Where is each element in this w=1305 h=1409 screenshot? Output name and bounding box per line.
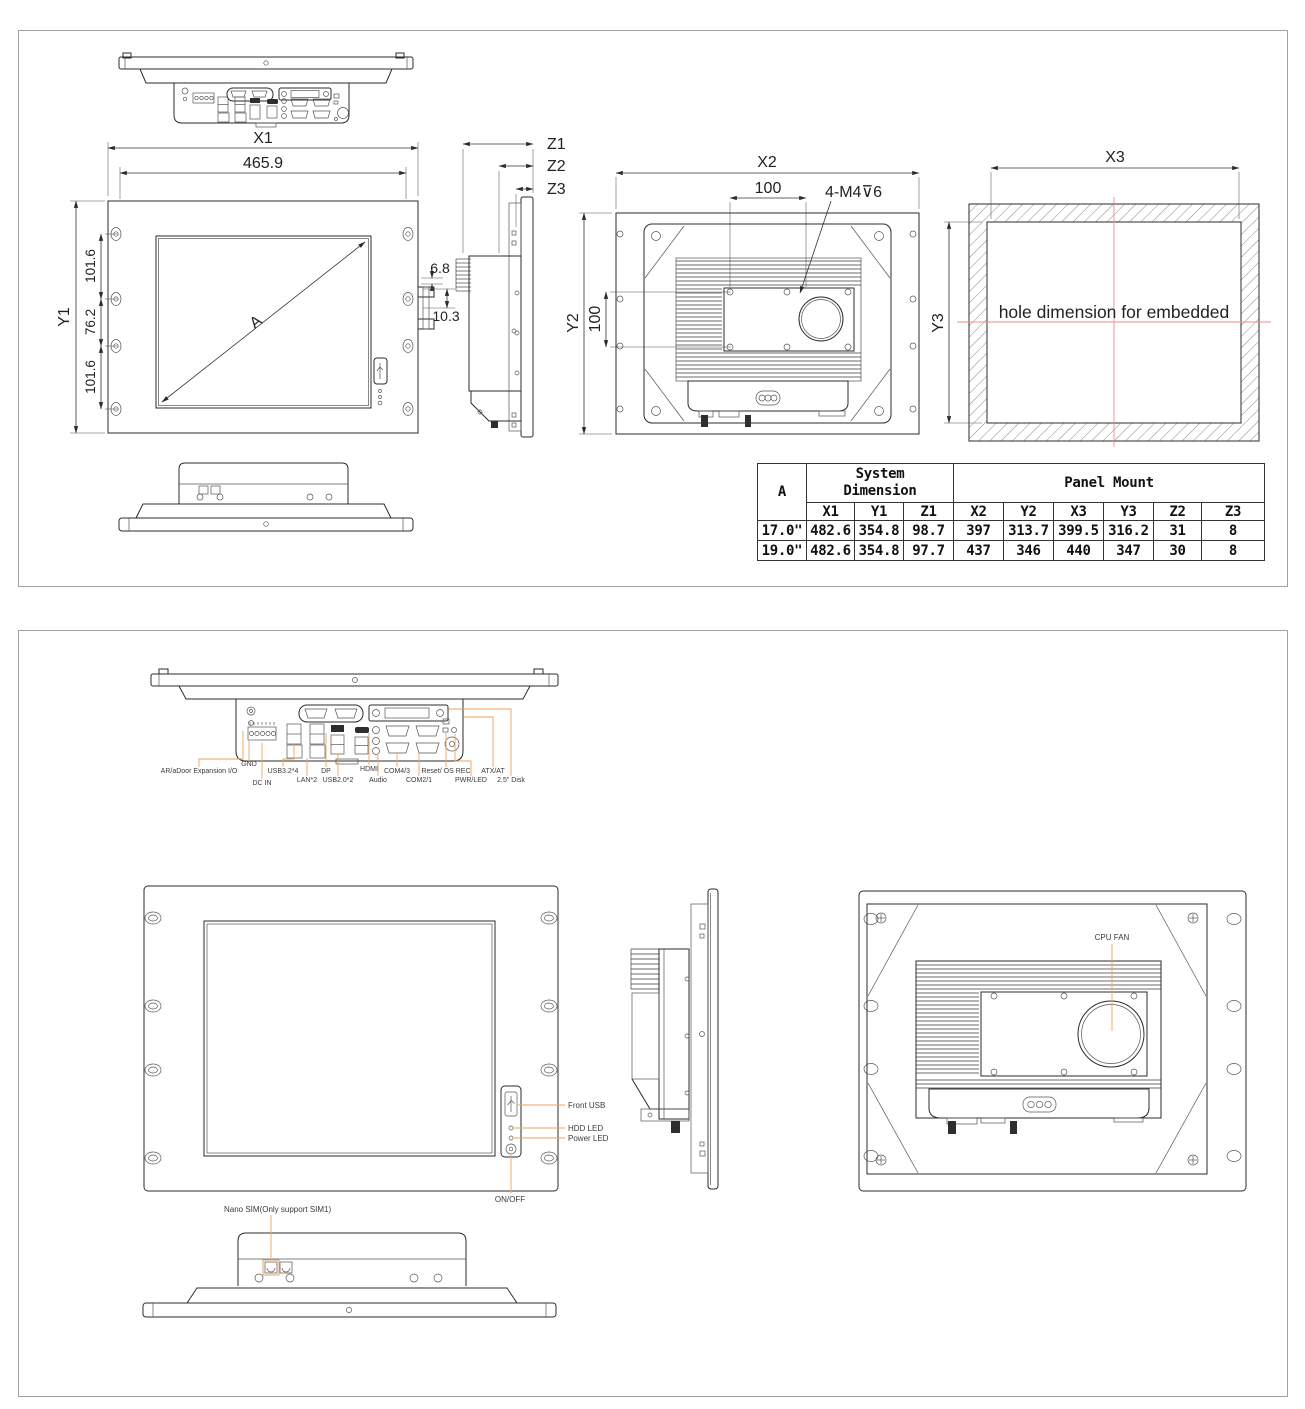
cutout-view: X3 Y3 hole dimension for embedded bbox=[930, 149, 1271, 447]
cutout-note: hole dimension for embedded bbox=[999, 302, 1230, 322]
table-col-x2: X2 bbox=[954, 503, 1004, 521]
io-label-com21: COM2/1 bbox=[406, 777, 432, 784]
label-front-usb: Front USB bbox=[568, 1101, 605, 1110]
io-label-com43: COM4/3 bbox=[384, 768, 410, 775]
table-col-y1: Y1 bbox=[855, 503, 904, 521]
io-label-pwr: PWR/LED bbox=[455, 777, 487, 784]
rack-ears-back bbox=[864, 914, 1241, 1162]
table-cell: 316.2 bbox=[1104, 521, 1154, 541]
drawing-page: X1 465.9 Y1 101.6 76.2 101.6 A 6.8 bbox=[0, 0, 1305, 1409]
dim-seg-top-label: 101.6 bbox=[83, 249, 98, 283]
io-label-expansion: AR/aDoor Expansion I/O bbox=[161, 768, 238, 775]
bottom-view-2: Nano SIM(Only support SIM1) bbox=[143, 1205, 556, 1317]
table-header-a: A bbox=[758, 464, 807, 521]
hdd-led-dot bbox=[509, 1126, 513, 1130]
front-usb-panel bbox=[501, 1086, 521, 1157]
table-cell: 482.6 bbox=[807, 541, 855, 561]
usb-lan-cluster bbox=[287, 724, 325, 758]
heatsink-fins-back-2 bbox=[916, 965, 1161, 1088]
table-cell: 354.8 bbox=[855, 521, 904, 541]
table-cell: 97.7 bbox=[904, 541, 954, 561]
table-cell: 440 bbox=[1054, 541, 1104, 561]
io-label-disk: 2.5" Disk bbox=[497, 777, 525, 784]
back-view: X2 100 4-M4⊽6 Y2 100 bbox=[565, 154, 919, 434]
table-col-z2: Z2 bbox=[1154, 503, 1202, 521]
io-label-hdmi: HDMI bbox=[360, 766, 378, 773]
table-cell: 17.0" bbox=[758, 521, 807, 541]
spec-table: A System Dimension Panel Mount X1 Y1 Z1 … bbox=[757, 463, 1265, 561]
power-button bbox=[506, 1144, 516, 1154]
front-view-rack: Front USB HDD LED Power LED ON/OFF bbox=[144, 886, 609, 1204]
system-dimension-line1: System bbox=[807, 466, 953, 483]
cpu-fan-drawing bbox=[799, 297, 843, 341]
dim-z1-label: Z1 bbox=[547, 136, 566, 153]
dim-x1-label: X1 bbox=[253, 130, 273, 147]
sheet-io-callouts: GND AR/aDoor Expansion I/O DC IN USB3.2*… bbox=[18, 630, 1288, 1397]
dim-y1-label: Y1 bbox=[56, 307, 73, 327]
side-view: Z1 Z2 Z3 bbox=[456, 136, 566, 437]
table-header-panel-mount: Panel Mount bbox=[954, 464, 1265, 503]
corner-screws bbox=[645, 226, 890, 421]
io-label-dc-in: DC IN bbox=[252, 780, 271, 787]
table-cell: 354.8 bbox=[855, 541, 904, 561]
table-col-y3: Y3 bbox=[1104, 503, 1154, 521]
dim-x2-label: X2 bbox=[757, 154, 777, 171]
bottom-view bbox=[119, 463, 413, 531]
audio-jacks bbox=[373, 727, 380, 755]
com-ports bbox=[386, 726, 439, 753]
io-label-usb3: USB3.2*4 bbox=[268, 768, 299, 775]
table-cell: 482.6 bbox=[807, 521, 855, 541]
table-cell: 8 bbox=[1202, 541, 1265, 561]
table-cell: 8 bbox=[1202, 521, 1265, 541]
label-onoff: ON/OFF bbox=[495, 1195, 525, 1204]
table-header-system-dimension: System Dimension bbox=[807, 464, 954, 503]
dim-z2-label: Z2 bbox=[547, 158, 566, 175]
table-col-x3: X3 bbox=[1054, 503, 1104, 521]
table-cell: 98.7 bbox=[904, 521, 954, 541]
table-cell: 19.0" bbox=[758, 541, 807, 561]
table-row-19: 19.0" 482.6 354.8 97.7 437 346 440 347 3… bbox=[758, 541, 1265, 561]
io-label-gnd: GND bbox=[241, 761, 257, 768]
label-power-led: Power LED bbox=[568, 1134, 609, 1143]
power-led-dot bbox=[509, 1136, 513, 1140]
mounting-holes-right bbox=[403, 228, 413, 416]
terminal-block bbox=[193, 93, 214, 103]
side-view-2 bbox=[631, 889, 718, 1189]
dim-y2-label: Y2 bbox=[565, 313, 582, 333]
table-col-y2: Y2 bbox=[1004, 503, 1054, 521]
corner-gussets bbox=[868, 905, 1206, 1173]
cpu-fan-drawing-2 bbox=[1078, 1001, 1144, 1067]
front-view: X1 465.9 Y1 101.6 76.2 101.6 A 6.8 bbox=[56, 130, 460, 433]
dim-seg-bot-label: 101.6 bbox=[83, 360, 98, 394]
dim-seg-mid-label: 76.2 bbox=[83, 309, 98, 335]
rack-ears-left bbox=[145, 912, 161, 1164]
rack-ears-right bbox=[541, 912, 557, 1164]
table-cell: 397 bbox=[954, 521, 1004, 541]
nano-sim-slots bbox=[263, 1260, 292, 1275]
sheet2-drawing: GND AR/aDoor Expansion I/O DC IN USB3.2*… bbox=[19, 631, 1287, 1396]
dim-vesa-v-label: 100 bbox=[587, 306, 604, 333]
dim-vesa-h-label: 100 bbox=[755, 180, 782, 197]
dim-6-8-label: 6.8 bbox=[430, 260, 450, 276]
label-hdd-led: HDD LED bbox=[568, 1124, 603, 1133]
io-label-reset: Reset/ OS REC bbox=[421, 768, 470, 775]
dim-10-3-label: 10.3 bbox=[432, 308, 459, 324]
io-view-labeled: GND AR/aDoor Expansion I/O DC IN USB3.2*… bbox=[151, 669, 558, 787]
io-label-lan: LAN*2 bbox=[297, 777, 317, 784]
label-cpu-fan: CPU FAN bbox=[1095, 933, 1130, 942]
table-row-17: 17.0" 482.6 354.8 98.7 397 313.7 399.5 3… bbox=[758, 521, 1265, 541]
heatsink-fins-back bbox=[676, 258, 861, 381]
thread-note-label: 4-M4⊽6 bbox=[825, 184, 882, 201]
label-nano-sim: Nano SIM(Only support SIM1) bbox=[224, 1205, 331, 1214]
front-usb-flap bbox=[374, 358, 387, 405]
table-cell: 30 bbox=[1154, 541, 1202, 561]
table-cell: 313.7 bbox=[1004, 521, 1054, 541]
table-cell: 346 bbox=[1004, 541, 1054, 561]
io-label-audio: Audio bbox=[369, 777, 387, 784]
table-col-x1: X1 bbox=[807, 503, 855, 521]
system-dimension-line2: Dimension bbox=[807, 483, 953, 500]
dc-terminal-block bbox=[248, 722, 276, 740]
io-label-atx: ATX/AT bbox=[481, 768, 505, 775]
table-col-z3: Z3 bbox=[1202, 503, 1265, 521]
mounting-holes-left bbox=[111, 228, 121, 416]
top-io-view bbox=[119, 53, 413, 127]
dim-z3-label: Z3 bbox=[547, 181, 566, 198]
table-cell: 399.5 bbox=[1054, 521, 1104, 541]
heatsink-fins-side-2 bbox=[631, 949, 659, 989]
table-cell: 31 bbox=[1154, 521, 1202, 541]
table-cell: 347 bbox=[1104, 541, 1154, 561]
sheet-dimensions: X1 465.9 Y1 101.6 76.2 101.6 A 6.8 bbox=[18, 30, 1288, 587]
back-view-rack: CPU FAN bbox=[859, 891, 1246, 1191]
table-cell: 437 bbox=[954, 541, 1004, 561]
io-label-dp: DP bbox=[321, 768, 331, 775]
io-label-usb2: USB2.0*2 bbox=[323, 777, 354, 784]
table-col-z1: Z1 bbox=[904, 503, 954, 521]
dim-y3-label: Y3 bbox=[930, 313, 947, 333]
dim-465-label: 465.9 bbox=[243, 155, 283, 172]
dim-x3-label: X3 bbox=[1105, 149, 1125, 166]
